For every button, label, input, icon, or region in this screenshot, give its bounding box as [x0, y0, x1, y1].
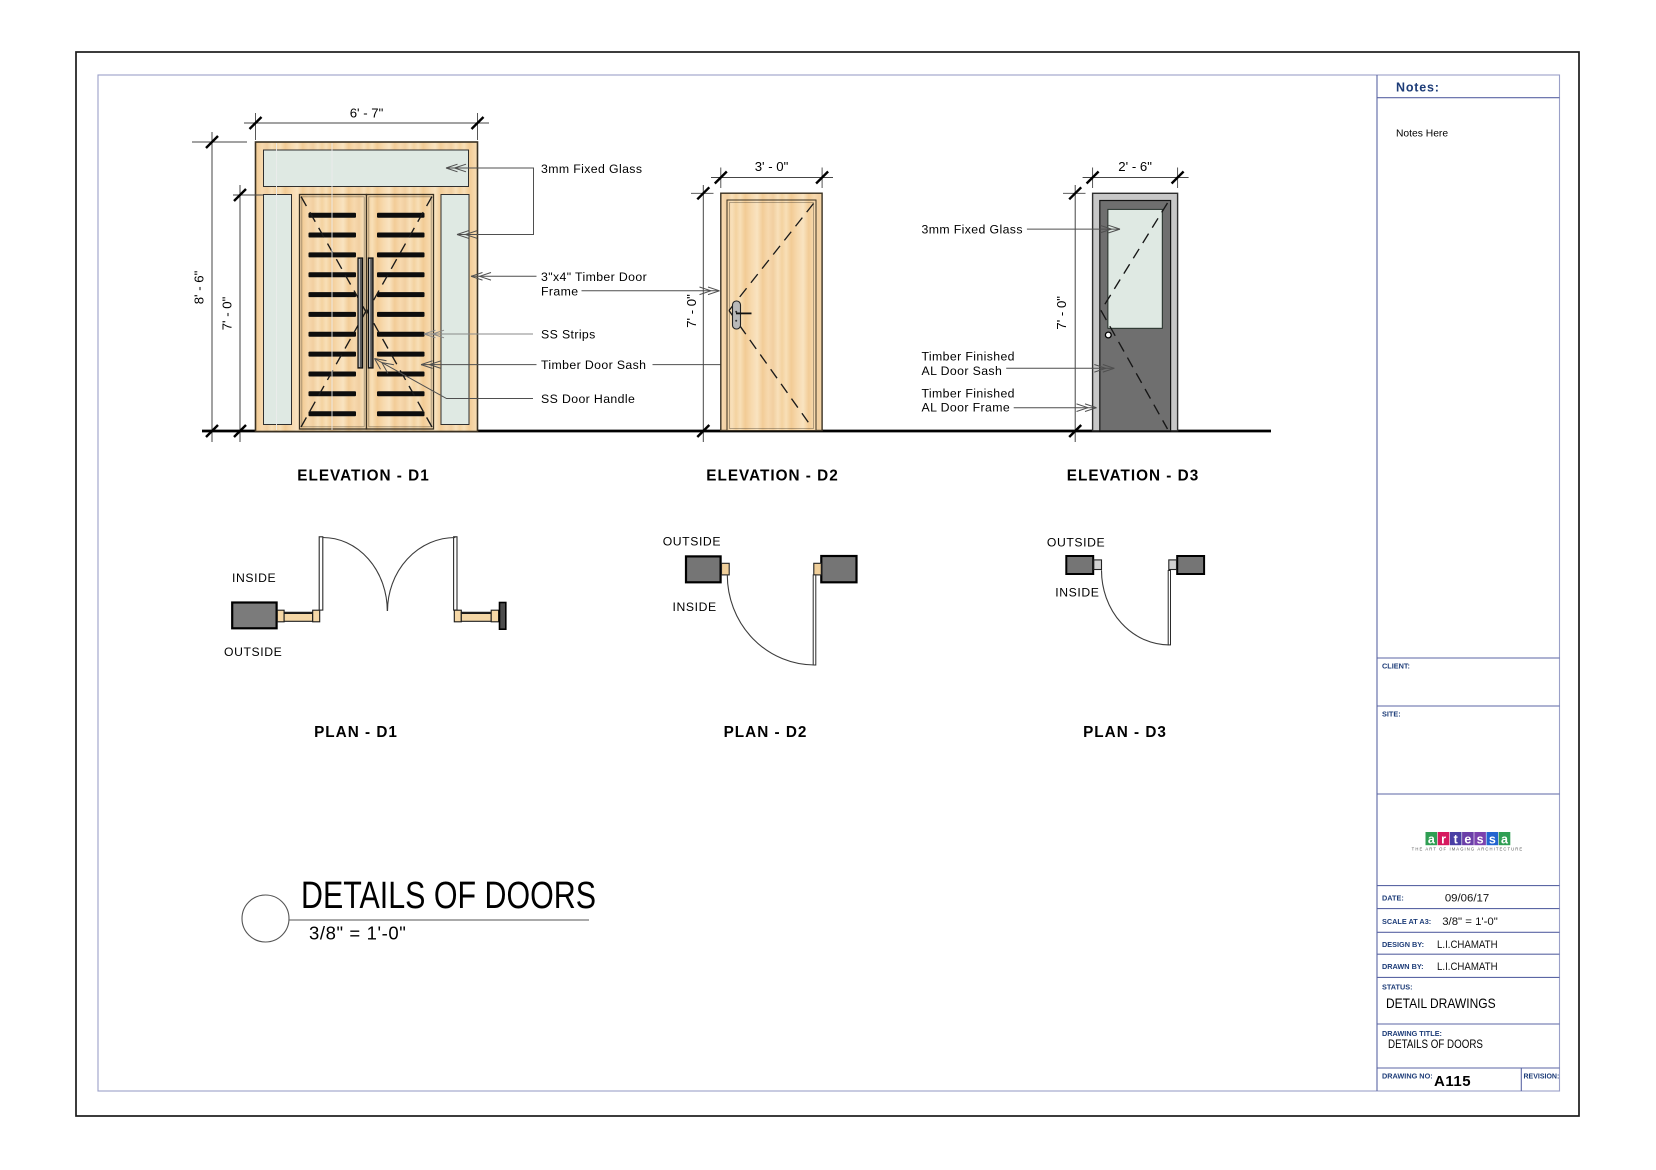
svg-text:7' - 0": 7' - 0" — [684, 294, 699, 328]
svg-text:DRAWING TITLE:: DRAWING TITLE: — [1382, 1029, 1442, 1038]
svg-text:3/8" = 1'-0": 3/8" = 1'-0" — [1442, 916, 1498, 928]
svg-text:PLAN - D2: PLAN - D2 — [724, 724, 808, 741]
svg-text:09/06/17: 09/06/17 — [1445, 893, 1489, 905]
svg-text:DRAWN BY:: DRAWN BY: — [1382, 962, 1424, 971]
svg-text:s: s — [1477, 832, 1484, 846]
svg-text:6' - 7": 6' - 7" — [350, 106, 384, 121]
svg-text:SCALE AT A3:: SCALE AT A3: — [1382, 917, 1431, 926]
svg-text:STATUS:: STATUS: — [1382, 983, 1413, 992]
svg-text:REVISION:: REVISION: — [1524, 1074, 1560, 1081]
svg-text:Timber Finished: Timber Finished — [922, 386, 1015, 400]
svg-text:INSIDE: INSIDE — [232, 571, 276, 585]
svg-text:SS Strips: SS Strips — [541, 327, 596, 341]
svg-text:2' - 6": 2' - 6" — [1118, 159, 1152, 174]
svg-text:Notes:: Notes: — [1396, 81, 1440, 95]
svg-text:OUTSIDE: OUTSIDE — [663, 535, 721, 549]
svg-text:OUTSIDE: OUTSIDE — [224, 645, 282, 659]
svg-text:8' - 6": 8' - 6" — [192, 270, 207, 304]
svg-text:DETAILS OF DOORS: DETAILS OF DOORS — [301, 875, 596, 917]
svg-text:ELEVATION - D3: ELEVATION - D3 — [1067, 468, 1199, 485]
svg-text:e: e — [1464, 832, 1471, 846]
svg-text:L.I.CHAMATH: L.I.CHAMATH — [1437, 960, 1498, 973]
svg-text:a: a — [1428, 832, 1436, 846]
svg-text:ELEVATION - D1: ELEVATION - D1 — [297, 468, 429, 485]
svg-text:AL Door Sash: AL Door Sash — [922, 364, 1003, 378]
svg-text:CLIENT:: CLIENT: — [1382, 662, 1410, 671]
svg-text:s: s — [1489, 832, 1496, 846]
svg-text:DATE:: DATE: — [1382, 894, 1404, 903]
svg-text:a: a — [1501, 832, 1509, 846]
svg-text:DRAWING NO:: DRAWING NO: — [1382, 1072, 1433, 1081]
svg-text:SITE:: SITE: — [1382, 710, 1401, 719]
svg-text:PLAN - D3: PLAN - D3 — [1083, 724, 1167, 741]
svg-text:ELEVATION - D2: ELEVATION - D2 — [706, 468, 838, 485]
svg-text:Frame: Frame — [541, 284, 578, 298]
svg-text:SS Door Handle: SS Door Handle — [541, 392, 635, 406]
svg-text:3/8" = 1'-0": 3/8" = 1'-0" — [309, 923, 406, 944]
svg-text:DETAILS OF DOORS: DETAILS OF DOORS — [1388, 1038, 1483, 1051]
svg-text:7' - 0": 7' - 0" — [220, 296, 235, 330]
svg-text:3"x4" Timber Door: 3"x4" Timber Door — [541, 270, 647, 284]
svg-text:7' - 0": 7' - 0" — [1054, 296, 1069, 330]
svg-text:AL Door Frame: AL Door Frame — [922, 401, 1011, 415]
svg-text:Timber Finished: Timber Finished — [922, 350, 1015, 364]
svg-text:r: r — [1441, 832, 1446, 846]
svg-text:L.I.CHAMATH: L.I.CHAMATH — [1437, 938, 1498, 951]
svg-text:DETAIL DRAWINGS: DETAIL DRAWINGS — [1386, 995, 1496, 1011]
svg-text:3' - 0": 3' - 0" — [755, 159, 789, 174]
svg-text:THE ART OF IMAGING ARCHITECTUR: THE ART OF IMAGING ARCHITECTURE — [1412, 847, 1524, 852]
svg-text:PLAN - D1: PLAN - D1 — [314, 724, 398, 741]
svg-text:Notes Here: Notes Here — [1396, 129, 1448, 140]
svg-text:A115: A115 — [1434, 1073, 1471, 1090]
svg-text:INSIDE: INSIDE — [1055, 586, 1099, 600]
svg-text:3mm Fixed Glass: 3mm Fixed Glass — [541, 162, 642, 176]
svg-text:3mm Fixed Glass: 3mm Fixed Glass — [922, 223, 1023, 237]
svg-text:Timber Door Sash: Timber Door Sash — [541, 358, 646, 372]
svg-text:DESIGN BY:: DESIGN BY: — [1382, 940, 1424, 949]
svg-text:INSIDE: INSIDE — [673, 600, 717, 614]
svg-text:OUTSIDE: OUTSIDE — [1047, 536, 1105, 550]
